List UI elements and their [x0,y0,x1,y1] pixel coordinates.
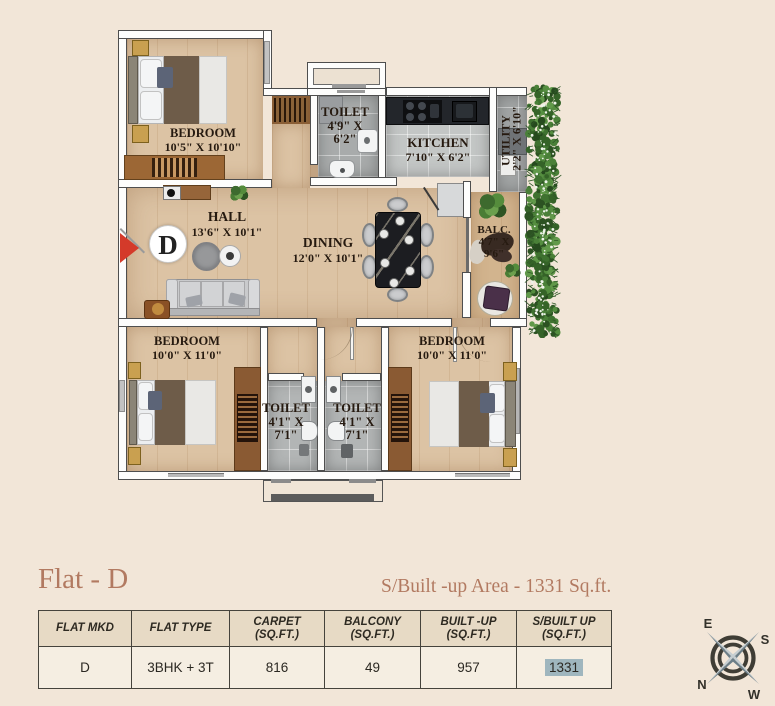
svg-text:E: E [704,616,713,631]
svg-text:S: S [761,632,770,647]
svg-text:N: N [697,677,706,692]
